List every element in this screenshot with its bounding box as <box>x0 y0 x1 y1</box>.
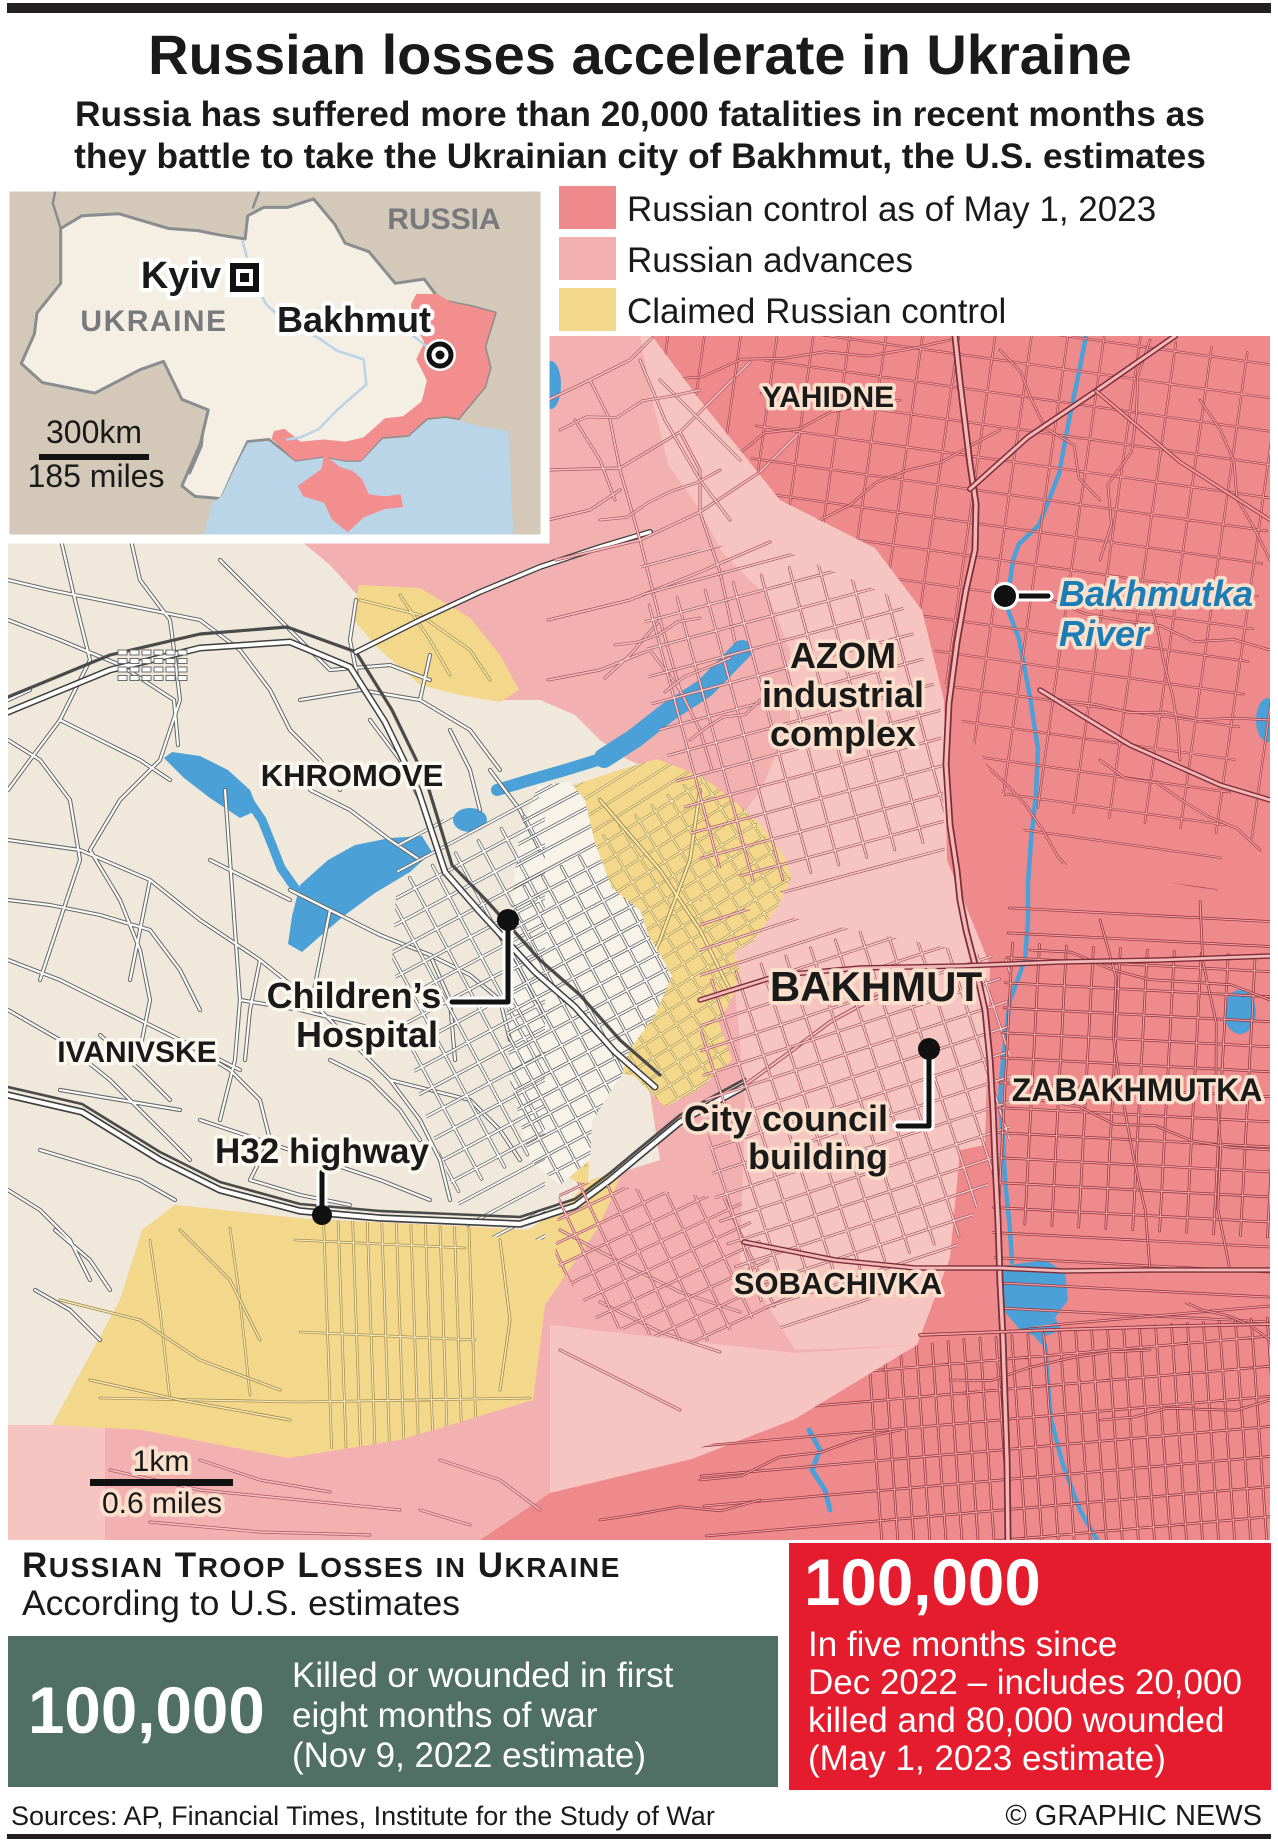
svg-text:Russian control as of May 1, 2: Russian control as of May 1, 2023 <box>627 190 1156 229</box>
svg-text:SOBACHIVKA: SOBACHIVKA <box>734 1266 942 1301</box>
svg-text:Killed or wounded in first: Killed or wounded in first <box>292 1656 674 1695</box>
svg-text:City council: City council <box>684 1098 888 1139</box>
svg-text:YAHIDNE: YAHIDNE <box>762 381 894 414</box>
svg-text:killed and 80,000 wounded: killed and 80,000 wounded <box>808 1701 1224 1740</box>
svg-text:River: River <box>1059 613 1151 654</box>
svg-text:IVANIVSKE: IVANIVSKE <box>57 1036 216 1069</box>
svg-text:© GRAPHIC NEWS: © GRAPHIC NEWS <box>1005 1800 1262 1832</box>
svg-text:they battle to take the Ukrain: they battle to take the Ukrainian city o… <box>74 137 1206 176</box>
svg-text:185 miles: 185 miles <box>28 458 165 494</box>
svg-text:300km: 300km <box>46 414 142 450</box>
svg-text:(Nov 9, 2022 estimate): (Nov 9, 2022 estimate) <box>292 1736 646 1775</box>
svg-text:UKRAINE: UKRAINE <box>80 305 227 338</box>
svg-text:Kyiv: Kyiv <box>141 255 221 297</box>
svg-text:KHROMOVE: KHROMOVE <box>261 758 444 793</box>
svg-text:BAKHMUT: BAKHMUT <box>770 963 983 1010</box>
svg-text:1km: 1km <box>133 1445 190 1478</box>
svg-text:ZABAKHMUTKA: ZABAKHMUTKA <box>1012 1072 1263 1108</box>
svg-text:Children’s: Children’s <box>267 975 442 1016</box>
svg-text:0.6 miles: 0.6 miles <box>102 1487 222 1520</box>
svg-text:Russian losses accelerate in U: Russian losses accelerate in Ukraine <box>148 23 1132 86</box>
svg-text:Russian advances: Russian advances <box>627 241 913 280</box>
svg-text:(May 1, 2023 estimate): (May 1, 2023 estimate) <box>808 1739 1166 1778</box>
svg-text:RUSSIA: RUSSIA <box>387 203 500 236</box>
svg-text:building: building <box>748 1136 888 1177</box>
svg-text:Bakhmutka: Bakhmutka <box>1059 573 1253 614</box>
svg-text:Claimed Russian control: Claimed Russian control <box>627 292 1006 331</box>
svg-text:AZOM: AZOM <box>790 635 896 676</box>
svg-text:Hospital: Hospital <box>296 1014 438 1055</box>
svg-text:Sources: AP, Financial Times,: Sources: AP, Financial Times, Institute … <box>11 1801 715 1831</box>
svg-text:industrial: industrial <box>762 674 924 715</box>
svg-text:H32 highway: H32 highway <box>215 1132 429 1171</box>
svg-text:RUSSIAN TROOP LOSSES IN UKRAIN: RUSSIAN TROOP LOSSES IN UKRAINE <box>22 1546 621 1585</box>
svg-text:100,000: 100,000 <box>28 1674 265 1747</box>
svg-text:According to U.S. estimates: According to U.S. estimates <box>22 1583 460 1623</box>
svg-text:Russia has suffered more than: Russia has suffered more than 20,000 fat… <box>75 95 1205 134</box>
svg-text:complex: complex <box>770 713 916 754</box>
svg-text:eight months of war: eight months of war <box>292 1696 598 1735</box>
svg-text:100,000: 100,000 <box>804 1546 1041 1619</box>
svg-text:In five months since: In five months since <box>808 1625 1117 1664</box>
svg-text:Bakhmut: Bakhmut <box>277 299 431 340</box>
svg-text:Dec 2022 – includes 20,000: Dec 2022 – includes 20,000 <box>808 1663 1242 1702</box>
